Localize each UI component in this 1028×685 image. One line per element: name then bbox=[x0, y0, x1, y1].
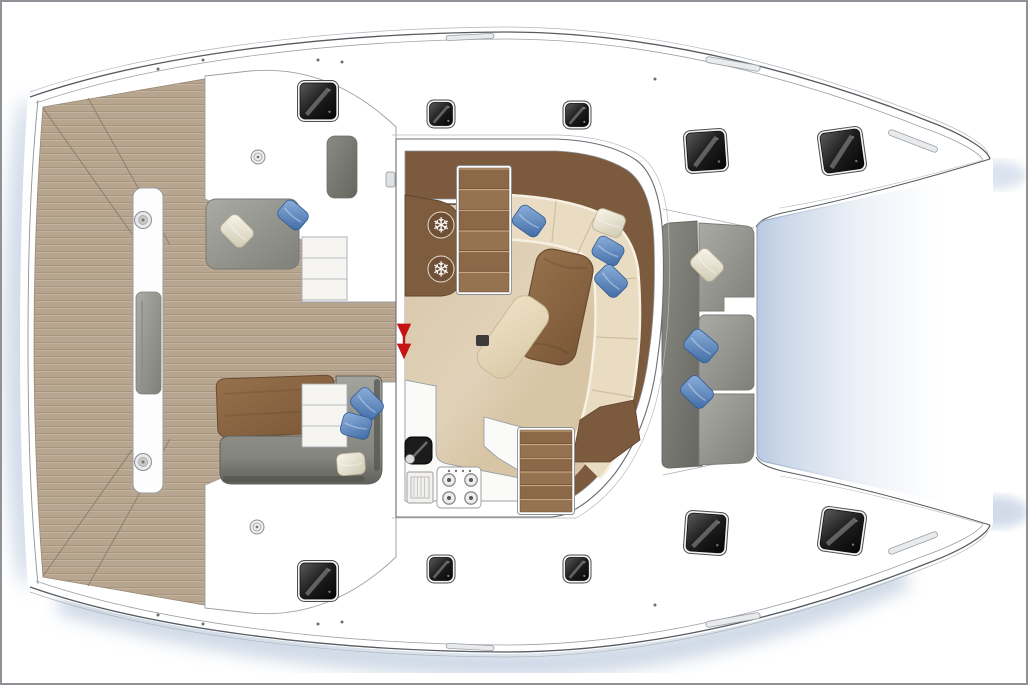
table-mount-socket bbox=[476, 335, 489, 346]
deck-fitting-dot bbox=[157, 614, 160, 617]
deck-fitting-dot bbox=[317, 59, 320, 62]
stove-burner bbox=[443, 492, 455, 504]
deck-drain bbox=[250, 520, 264, 534]
deck-hatch bbox=[563, 101, 591, 129]
aft-platform-beam bbox=[133, 188, 163, 493]
deck-hatch bbox=[427, 100, 455, 128]
deck-hatch bbox=[298, 561, 339, 602]
deck-hatch bbox=[683, 128, 729, 174]
deck-fitting-dot bbox=[341, 621, 344, 624]
deck-hatch bbox=[683, 510, 729, 556]
beam-center-pad bbox=[136, 292, 161, 394]
deck-fitting-dot bbox=[341, 61, 344, 64]
deck-fitting-dot bbox=[202, 59, 205, 62]
deck-fitting-dot bbox=[317, 623, 320, 626]
oven bbox=[407, 472, 433, 503]
snowflake-icon: ❄ bbox=[428, 256, 454, 282]
forward-bench-seat-3 bbox=[699, 394, 754, 465]
deck-hatch bbox=[817, 506, 868, 557]
deck-hatch bbox=[563, 555, 591, 583]
deck-fitting-dot bbox=[157, 68, 160, 71]
stove-knob bbox=[469, 470, 471, 472]
pillow-white bbox=[336, 452, 366, 476]
stove-burner bbox=[443, 474, 455, 486]
stove bbox=[437, 467, 481, 508]
salon-entry-steps bbox=[457, 166, 512, 295]
deck-drain bbox=[251, 150, 265, 164]
cockpit-side-steps-top bbox=[302, 237, 347, 300]
deck-fitting-dot bbox=[202, 623, 205, 626]
svg-text:❄: ❄ bbox=[432, 214, 450, 238]
stove-burner bbox=[465, 474, 477, 486]
sink bbox=[405, 437, 432, 464]
stove-knob bbox=[462, 470, 464, 472]
trampoline bbox=[757, 166, 987, 516]
deck-plan-drawing: ❄❄ bbox=[0, 0, 1028, 685]
deck-fitting-dot bbox=[654, 604, 657, 607]
cockpit-side-steps-bottom bbox=[302, 384, 347, 447]
stove-knob bbox=[448, 470, 450, 472]
deck-hatch bbox=[817, 126, 868, 177]
stove-knob bbox=[455, 470, 457, 472]
deck-hatch bbox=[298, 81, 339, 122]
catamaran-floor-plan: ❄❄ bbox=[0, 0, 1028, 685]
door-latch-fitting bbox=[386, 172, 395, 187]
snowflake-icon: ❄ bbox=[428, 212, 454, 238]
svg-text:❄: ❄ bbox=[432, 258, 450, 282]
helm-backrest-pad bbox=[327, 136, 357, 198]
beam-port-fitting bbox=[135, 454, 152, 471]
beam-port-fitting bbox=[135, 212, 152, 229]
deck-hatch bbox=[427, 555, 455, 583]
faucet bbox=[406, 455, 415, 464]
stove-burner bbox=[465, 492, 477, 504]
deck-fitting-dot bbox=[654, 78, 657, 81]
galley-hull-steps bbox=[518, 428, 575, 515]
